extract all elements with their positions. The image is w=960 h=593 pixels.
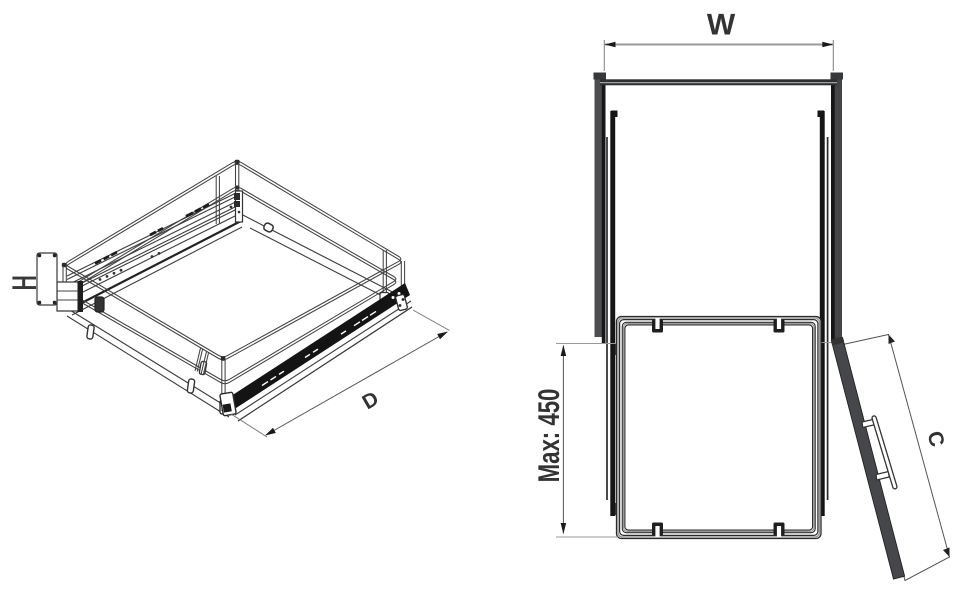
svg-text:C: C [922,429,948,450]
svg-text:W: W [707,8,736,41]
svg-text:D: D [358,387,382,414]
svg-text:Max: 450: Max: 450 [533,389,566,483]
